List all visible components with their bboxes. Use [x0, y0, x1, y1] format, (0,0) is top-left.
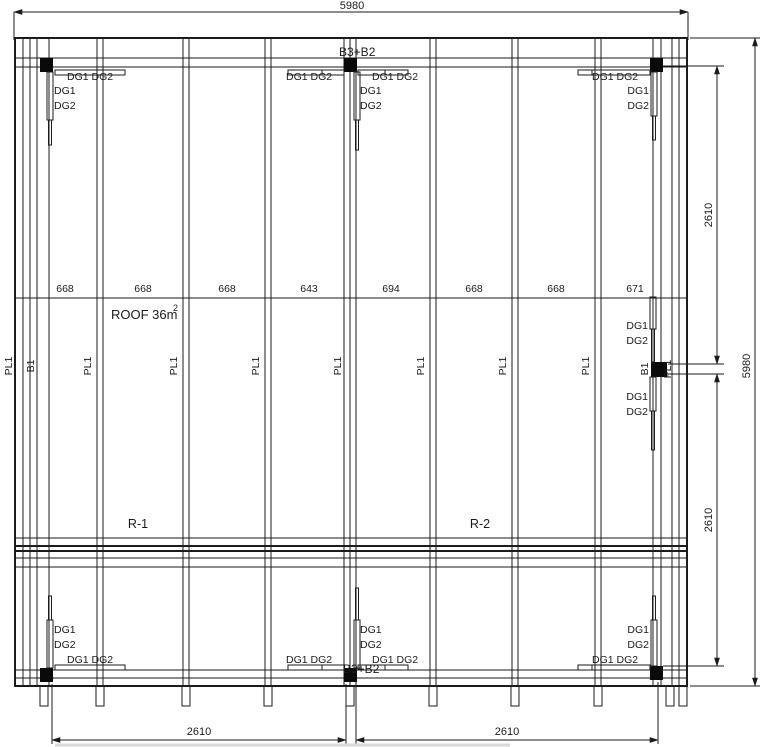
- purlin-label: PL1: [168, 357, 180, 376]
- girder2-label: DG2: [360, 639, 382, 651]
- girder1-label: DG1: [360, 624, 382, 636]
- span-dim: 668: [56, 283, 74, 295]
- span-dim: 668: [218, 283, 236, 295]
- beam-combo-bottom: B3+B2: [343, 662, 380, 676]
- span-dim: 668: [465, 283, 483, 295]
- purlin-label: PL1: [250, 357, 262, 376]
- girder2-label: DG2: [360, 100, 382, 112]
- purlin-label: PL1: [82, 357, 94, 376]
- roof-framing-plan: 5980 2610 2610 5980 2610 2610 668 668 66…: [0, 0, 769, 747]
- purlin-label: PL1: [580, 357, 592, 376]
- column-top-mid: [344, 58, 357, 72]
- girder1-label: DG1: [626, 320, 648, 332]
- girder-pair-label: DG1 DG2: [286, 71, 332, 83]
- girder2-label: DG2: [54, 639, 76, 651]
- girder1-label: DG1: [54, 624, 76, 636]
- girder2-label: DG2: [626, 335, 648, 347]
- plan-canvas: 5980 2610 2610 5980 2610 2610 668 668 66…: [0, 0, 769, 747]
- dim-overall-height: 5980: [741, 354, 753, 378]
- region-r2-label: R-2: [470, 517, 490, 531]
- girder1-label: DG1: [626, 391, 648, 403]
- girder2-label: DG2: [627, 100, 649, 112]
- purlin-label: PL1: [332, 357, 344, 376]
- girder2-label: DG2: [627, 639, 649, 651]
- dim-overall-width: 5980: [340, 0, 364, 12]
- dim-right-lower: 2610: [703, 508, 715, 532]
- girder-pair-label: DG1 DG2: [372, 71, 418, 83]
- column-top-right: [650, 58, 663, 72]
- girder2-label: DG2: [626, 406, 648, 418]
- girder1-label: DG1: [360, 85, 382, 97]
- purlin-label: PL1: [3, 357, 15, 376]
- dim-bottom-left: 2610: [187, 726, 211, 738]
- roof-area-label: ROOF 36m: [111, 307, 177, 322]
- girder2-label: DG2: [54, 100, 76, 112]
- girder1-label: DG1: [54, 85, 76, 97]
- beam-b1-label: B1: [25, 359, 37, 372]
- roof-area-exponent: 2: [173, 303, 178, 313]
- girder1-label: DG1: [627, 85, 649, 97]
- dim-right-upper: 2610: [703, 203, 715, 227]
- dim-bottom-right: 2610: [495, 726, 519, 738]
- girder1-label: DG1: [627, 624, 649, 636]
- girder-pair-label: DG1 DG2: [286, 654, 332, 666]
- column-bottom-left: [40, 668, 53, 682]
- region-r1-label: R-1: [128, 517, 148, 531]
- girder-texts: DG1 DG2 DG1 DG2 DG1 DG2 DG1 DG2 DG1 DG2 …: [54, 71, 649, 666]
- span-dim: 643: [300, 283, 318, 295]
- girder-pair-label: DG1 DG2: [592, 71, 638, 83]
- girder-pair-label: DG1 DG2: [592, 654, 638, 666]
- column-bottom-right: [650, 666, 663, 680]
- joist-feet: [40, 686, 687, 706]
- span-dim: 694: [382, 283, 400, 295]
- girder-pair-label: DG1 DG2: [67, 71, 113, 83]
- beam-b1-label: B1: [639, 362, 651, 375]
- ledger-plates: [55, 70, 650, 670]
- purlin-label: PL1: [662, 360, 674, 379]
- columns: [40, 58, 667, 682]
- member-texts: PL1 B1 PL1 PL1 PL1 PL1 PL1 PL1 PL1 B1 PL…: [3, 357, 674, 379]
- purlin-label: PL1: [415, 357, 427, 376]
- span-dim: 668: [547, 283, 565, 295]
- span-dim: 671: [626, 283, 644, 295]
- beam-combo-top: B3+B2: [339, 45, 376, 59]
- span-dim: 668: [134, 283, 152, 295]
- hanger-strips: [47, 72, 657, 668]
- column-top-left: [40, 58, 53, 72]
- girder-pair-label: DG1 DG2: [67, 654, 113, 666]
- purlin-label: PL1: [497, 357, 509, 376]
